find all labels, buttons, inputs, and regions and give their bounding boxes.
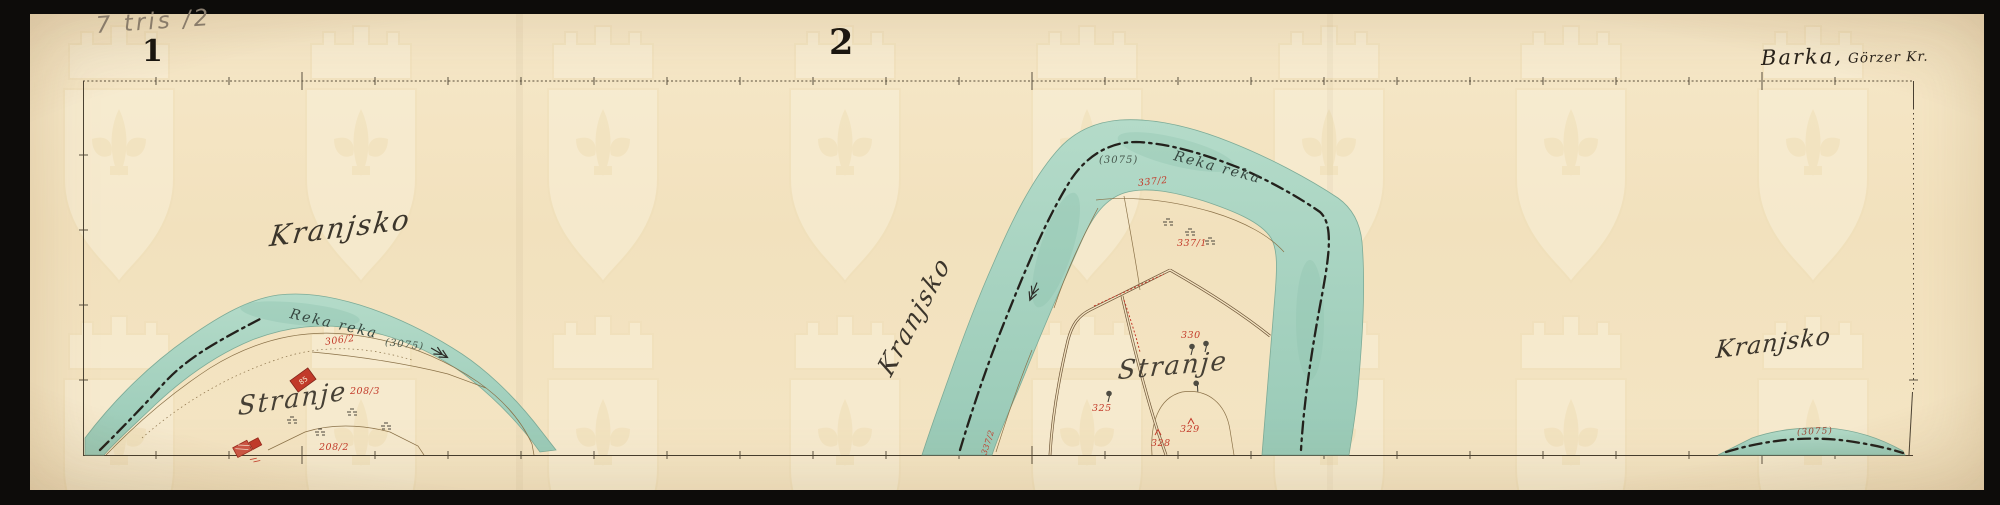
scanned-cadastral-map-sheet: 85 7 tris /2 1 2 Barka, Görzer Kr. Kranj…	[0, 0, 2000, 505]
scan-vignette	[30, 14, 1984, 490]
map-graphics: 85	[0, 0, 2000, 505]
